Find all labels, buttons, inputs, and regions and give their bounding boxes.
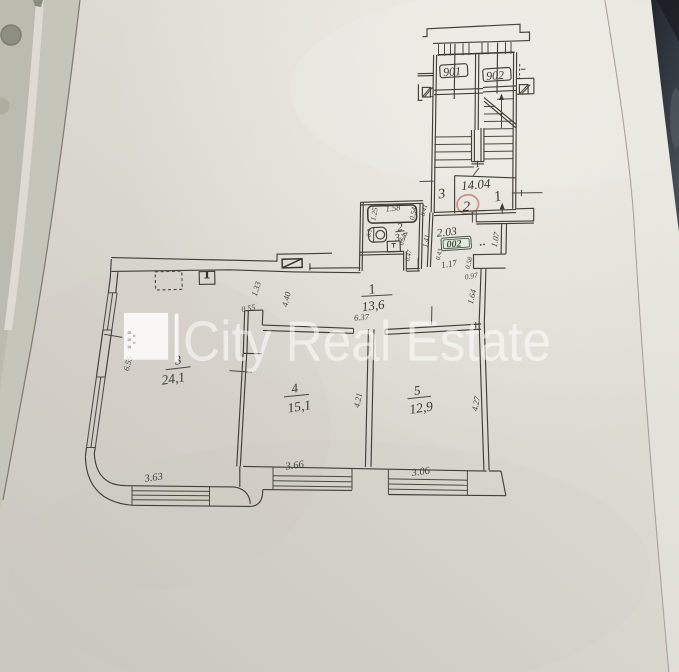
svg-text:2: 2 [463, 199, 470, 215]
svg-text:1.58: 1.58 [385, 202, 402, 214]
svg-text:902: 902 [486, 68, 505, 83]
svg-text:14.04: 14.04 [461, 176, 492, 194]
svg-text:901: 901 [443, 64, 462, 79]
svg-text:City Real Estate: City Real Estate [183, 310, 551, 374]
svg-text:002: 002 [446, 239, 462, 251]
